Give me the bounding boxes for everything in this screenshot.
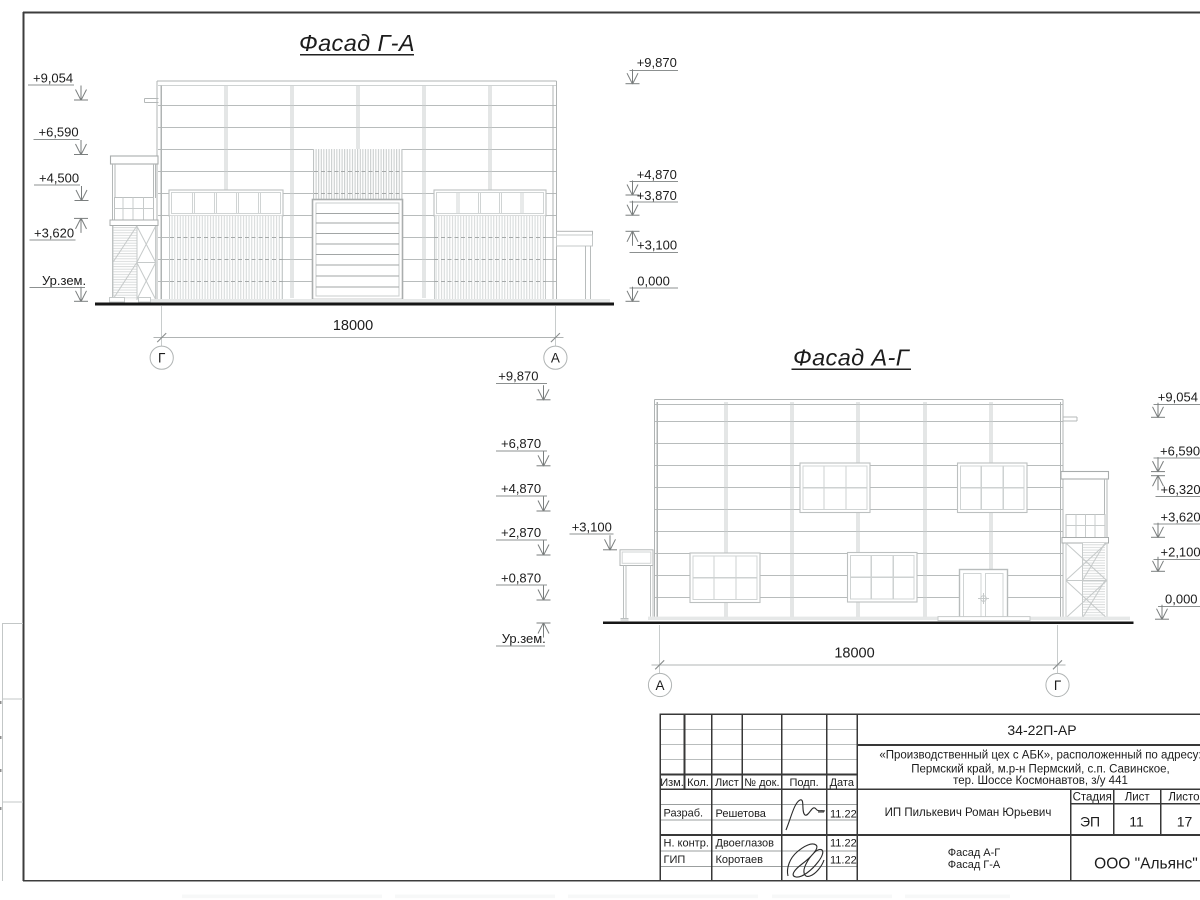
svg-text:Листов: Листов	[1168, 791, 1200, 803]
svg-text:Н. контр.: Н. контр.	[664, 838, 709, 850]
svg-text:тер. Шоссе Космонавтов, з/у 44: тер. Шоссе Космонавтов, з/у 441	[953, 775, 1128, 787]
svg-text:Фасад Г-А: Фасад Г-А	[299, 30, 415, 56]
svg-text:+9,870: +9,870	[637, 55, 677, 70]
svg-text:ГИП: ГИП	[664, 854, 686, 866]
svg-text:Фасад А-Г: Фасад А-Г	[793, 345, 911, 371]
svg-text:А: А	[551, 351, 560, 366]
svg-text:Ур.зем.: Ур.зем.	[502, 631, 546, 646]
svg-text:Разраб.: Разраб.	[664, 808, 704, 820]
svg-text:+9,054: +9,054	[1158, 390, 1198, 405]
svg-text:0,000: 0,000	[637, 273, 670, 288]
svg-text:+3,100: +3,100	[637, 238, 677, 253]
svg-text:Пермский край, м.р-н Пермский,: Пермский край, м.р-н Пермский, с.п. Сави…	[911, 764, 1169, 776]
svg-text:Дата: Дата	[830, 777, 855, 789]
svg-text:Ур.зем.: Ур.зем.	[42, 273, 86, 288]
svg-text:+0,870: +0,870	[501, 570, 541, 585]
svg-text:11.22: 11.22	[830, 855, 857, 867]
svg-text:Подп.: Подп.	[789, 777, 818, 789]
svg-text:Г: Г	[158, 351, 166, 366]
svg-text:34-22П-АР: 34-22П-АР	[1007, 722, 1076, 738]
svg-text:+6,590: +6,590	[39, 125, 79, 140]
svg-text:11: 11	[1129, 814, 1144, 830]
svg-text:17: 17	[1177, 814, 1193, 830]
svg-text:Фасад Г-А: Фасад Г-А	[948, 859, 1001, 871]
svg-text:ИП Пилькевич Роман Юрьевич: ИП Пилькевич Роман Юрьевич	[885, 807, 1052, 819]
svg-text:0,000: 0,000	[1165, 592, 1198, 607]
svg-text:+4,870: +4,870	[637, 167, 677, 182]
svg-text:+3,620: +3,620	[1161, 509, 1200, 524]
svg-text:+2,100: +2,100	[1161, 545, 1200, 560]
svg-text:Лист: Лист	[715, 777, 739, 789]
svg-text:+4,500: +4,500	[39, 170, 79, 185]
svg-text:А: А	[655, 678, 664, 693]
svg-text:+6,870: +6,870	[501, 436, 541, 451]
svg-text:Коротаев: Коротаев	[716, 854, 764, 866]
svg-text:Изм.: Изм.	[660, 777, 684, 789]
svg-text:№ док.: № док.	[744, 777, 779, 789]
svg-text:ЭП: ЭП	[1080, 814, 1100, 830]
svg-text:ООО "Альянс": ООО "Альянс"	[1094, 856, 1198, 873]
svg-text:11.22: 11.22	[830, 809, 857, 821]
svg-text:Г: Г	[1054, 678, 1062, 693]
svg-text:+9,054: +9,054	[33, 71, 73, 86]
svg-text:+6,320: +6,320	[1161, 482, 1200, 497]
svg-text:Фасад А-Г: Фасад А-Г	[948, 847, 1001, 859]
svg-text:«Производственный цех с АБК»,: «Производственный цех с АБК», расположен…	[879, 750, 1200, 762]
svg-text:+3,870: +3,870	[637, 188, 677, 203]
svg-text:+9,870: +9,870	[498, 368, 538, 383]
svg-text:Двоеглазов: Двоеглазов	[716, 838, 775, 850]
svg-text:Лист: Лист	[1125, 791, 1151, 803]
svg-text:11.22: 11.22	[830, 838, 857, 850]
svg-text:+3,620: +3,620	[34, 225, 74, 240]
svg-text:18000: 18000	[333, 318, 373, 334]
svg-text:+2,870: +2,870	[501, 525, 541, 540]
svg-text:+3,100: +3,100	[572, 519, 612, 534]
svg-text:+6,590: +6,590	[1160, 443, 1200, 458]
svg-text:18000: 18000	[834, 646, 874, 662]
svg-text:+4,870: +4,870	[501, 481, 541, 496]
svg-text:Решетова: Решетова	[716, 808, 767, 820]
svg-text:Стадия: Стадия	[1073, 791, 1112, 803]
svg-text:Кол.: Кол.	[687, 777, 709, 789]
